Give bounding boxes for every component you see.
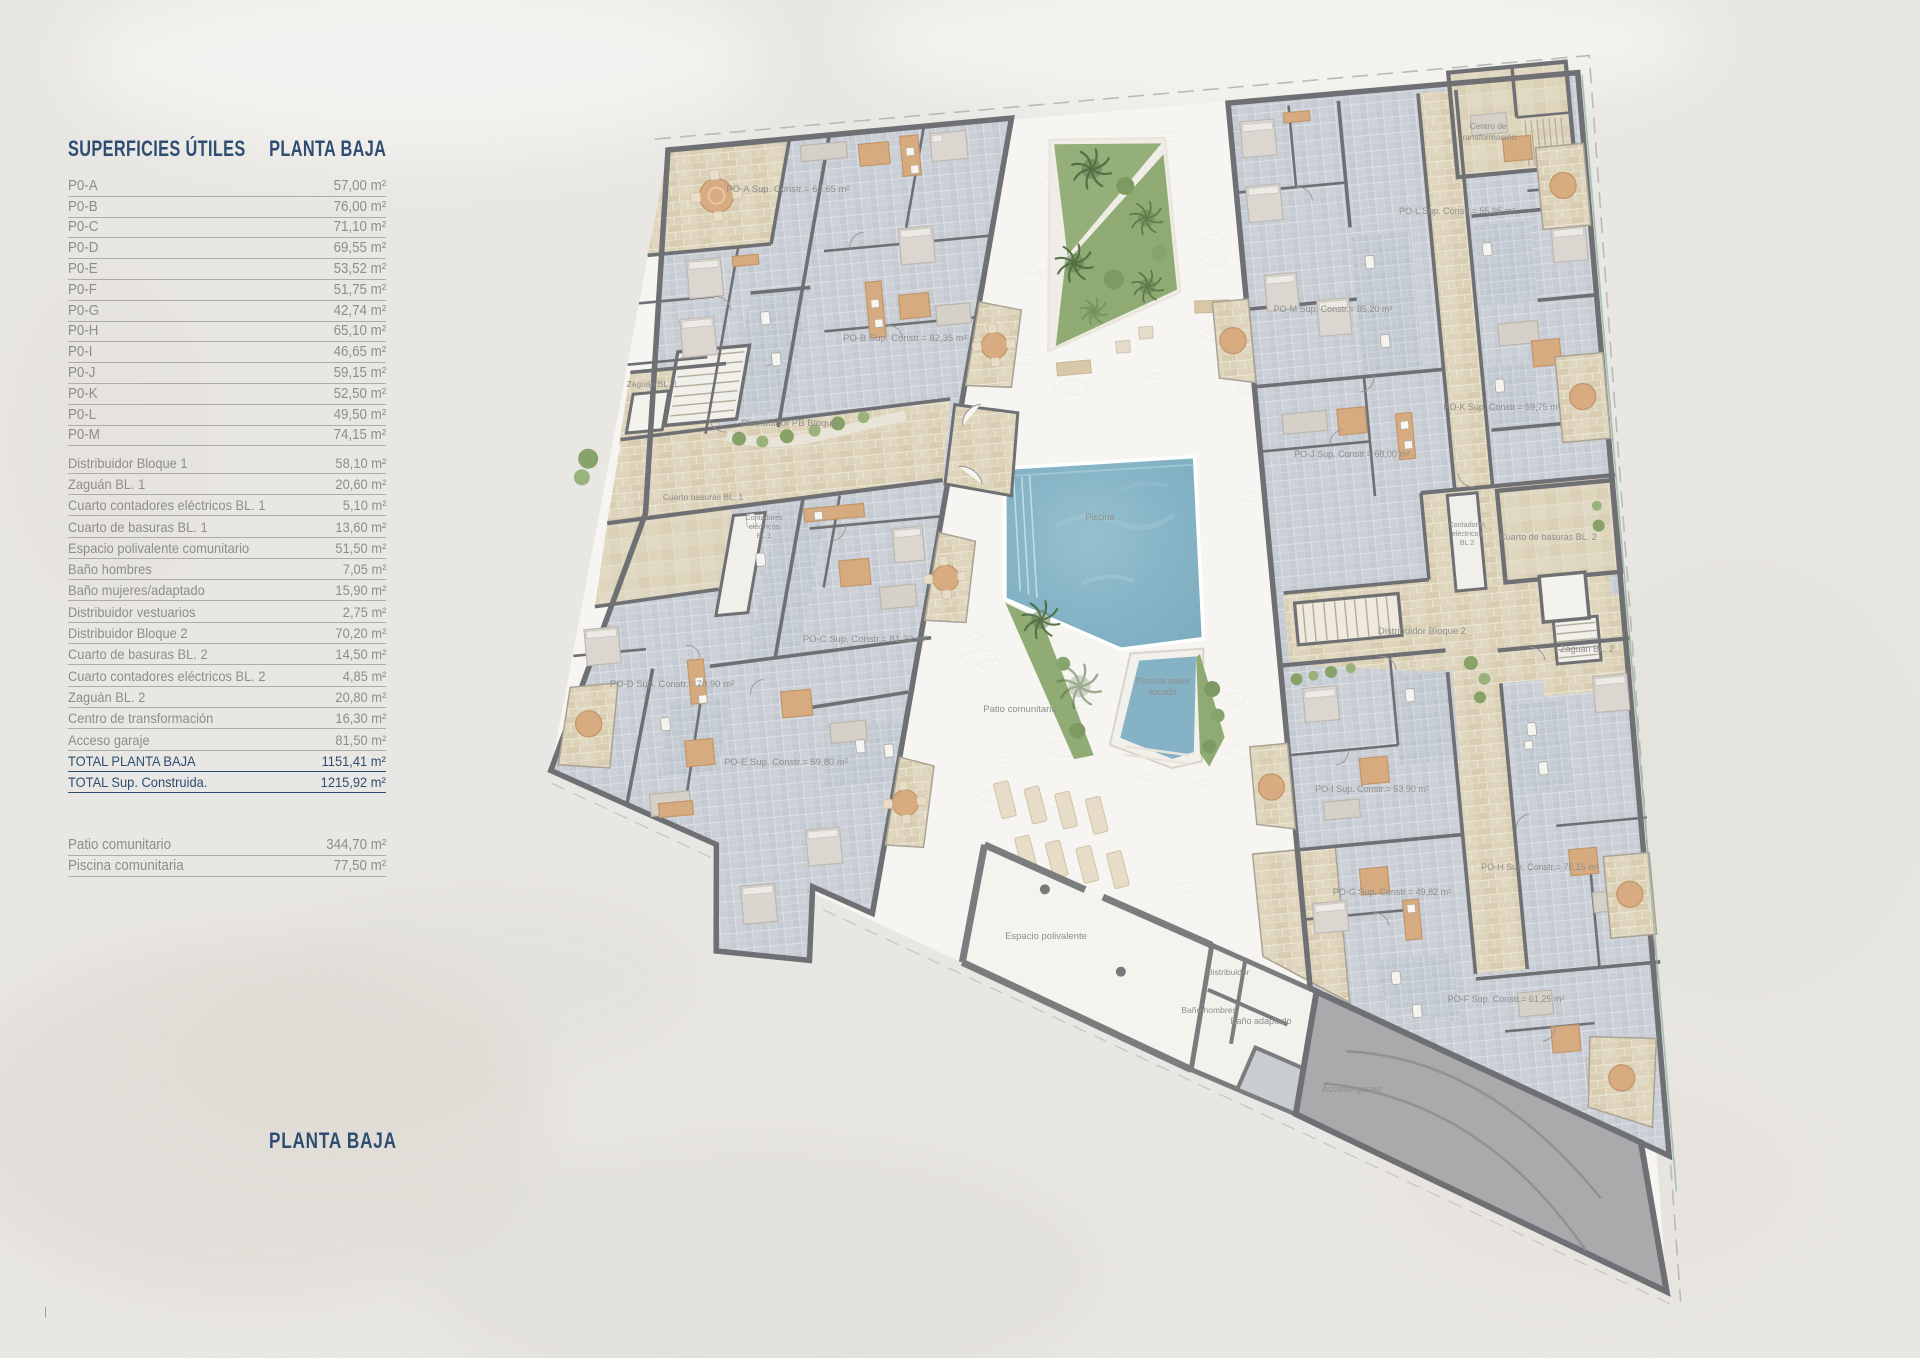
svg-text:PO-J Sup. Constr.= 68,00 m²: PO-J Sup. Constr.= 68,00 m²	[1294, 449, 1410, 459]
svg-text:PO-E Sup. Constr.= 59,80 m²: PO-E Sup. Constr.= 59,80 m²	[724, 757, 848, 768]
svg-text:PO-C Sup. Constr.= 81,32 m²: PO-C Sup. Constr.= 81,32 m²	[803, 634, 927, 645]
svg-text:PO-F Sup. Constr.= 61,25 m²: PO-F Sup. Constr.= 61,25 m²	[1448, 994, 1565, 1004]
svg-text:PO-B Sup. Constr.= 82,35 m²: PO-B Sup. Constr.= 82,35 m²	[843, 333, 967, 344]
svg-text:Zaguán BL. 2: Zaguán BL. 2	[1560, 644, 1614, 654]
svg-text:Cuarto de basuras BL. 2: Cuarto de basuras BL. 2	[1499, 532, 1597, 542]
svg-text:Espacio polivalente: Espacio polivalente	[1005, 931, 1087, 942]
svg-text:PO-G Sup. Constr.= 49,82 m²: PO-G Sup. Constr.= 49,82 m²	[1333, 887, 1451, 897]
svg-text:tocado: tocado	[1149, 687, 1176, 697]
svg-text:Centro de: Centro de	[1469, 121, 1507, 131]
svg-text:BL 2: BL 2	[1460, 538, 1475, 547]
svg-text:Zaguán BL. 1: Zaguán BL. 1	[626, 379, 677, 389]
svg-text:PO-H Sup. Constr.= 75,15 m²: PO-H Sup. Constr.= 75,15 m²	[1481, 862, 1599, 872]
svg-text:Cuarto basuras BL. 1: Cuarto basuras BL. 1	[663, 492, 744, 502]
svg-text:PO-I Sup. Constr.= 53,90 m²: PO-I Sup. Constr.= 53,90 m²	[1315, 784, 1429, 794]
svg-text:eléctricos: eléctricos	[1452, 529, 1483, 538]
svg-text:Contadores: Contadores	[745, 513, 783, 522]
svg-text:Piscina sobre: Piscina sobre	[1136, 676, 1190, 686]
svg-text:PO-L Sup. Constr.= 55,95 m²: PO-L Sup. Constr.= 55,95 m²	[1399, 206, 1515, 216]
svg-text:PO-A Sup. Constr.= 67,65 m²: PO-A Sup. Constr.= 67,65 m²	[726, 184, 849, 195]
svg-text:Distribuidor: Distribuidor	[1207, 967, 1250, 977]
svg-text:PO-M Sup. Constr.= 85,20 m²: PO-M Sup. Constr.= 85,20 m²	[1274, 304, 1393, 314]
svg-text:Distribuidor PB Bloque 1: Distribuidor PB Bloque 1	[741, 418, 845, 429]
svg-text:PO-D Sup. Constr.= 70,90 m²: PO-D Sup. Constr.= 70,90 m²	[610, 679, 734, 690]
svg-text:transformación: transformación	[1460, 132, 1516, 142]
svg-text:Patio comunitario: Patio comunitario	[983, 704, 1056, 715]
svg-text:Piscina: Piscina	[1085, 512, 1114, 522]
svg-text:Acceso garaje: Acceso garaje	[1322, 1084, 1382, 1095]
svg-text:Contadores: Contadores	[1448, 520, 1486, 529]
svg-text:Baño adaptado: Baño adaptado	[1230, 1016, 1291, 1026]
svg-text:Baño hombres: Baño hombres	[1181, 1005, 1236, 1015]
svg-text:eléctricos: eléctricos	[749, 522, 780, 531]
svg-text:PO-K Sup. Constr.= 59,75 m²: PO-K Sup. Constr.= 59,75 m²	[1443, 402, 1560, 412]
svg-text:Distribuidor Bloque 2: Distribuidor Bloque 2	[1378, 626, 1466, 637]
svg-text:BL 1: BL 1	[757, 531, 772, 540]
